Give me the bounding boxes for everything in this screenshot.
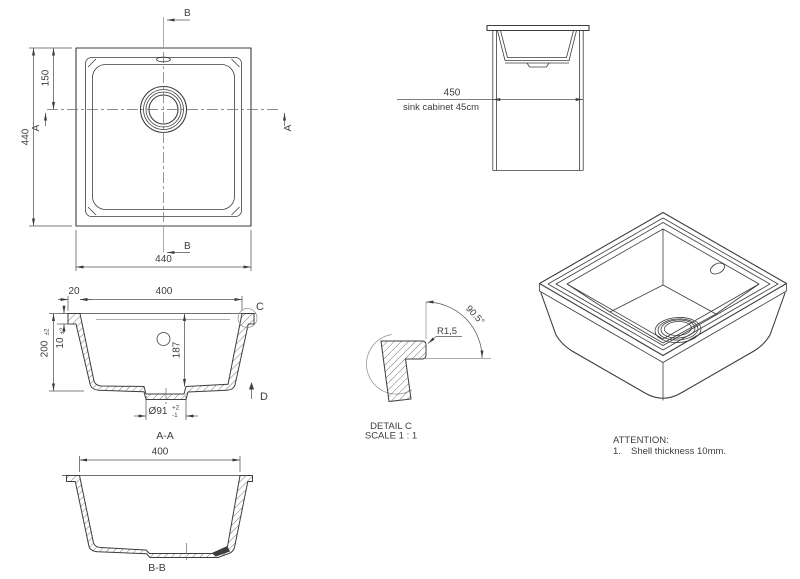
sink-drawing-svg: B B A A 440 150 440 <box>0 0 800 579</box>
dim-text-10: 10 <box>55 337 66 349</box>
direction-d-marker: D <box>249 382 268 403</box>
angle-text: 90.5° <box>463 303 486 327</box>
section-aa-label: A-A <box>156 430 174 442</box>
notes-title: ATTENTION: <box>613 435 669 446</box>
dim-tol-10: ±2 <box>59 327 66 334</box>
section-bb-label: B-B <box>148 562 166 574</box>
radius-text: R1,5 <box>437 326 457 337</box>
section-aa-view: 20 400 200 ±2 10 ±2 187 <box>40 286 269 442</box>
isometric-view <box>540 213 787 401</box>
dimension-400-aa: 400 <box>80 286 242 311</box>
notes-block: ATTENTION: 1. Shell thickness 10mm. <box>613 435 726 457</box>
dim-drain-tol-dn: -1 <box>172 412 178 419</box>
dimension-10: 10 ±2 <box>55 305 73 349</box>
drain-stub <box>527 63 549 67</box>
sink-basin-profile <box>498 31 577 68</box>
notes-item-text: Shell thickness 10mm. <box>631 446 726 457</box>
cabinet-caption: sink cabinet 45cm <box>403 102 479 113</box>
dimension-187: 187 <box>172 314 185 387</box>
rim-corner-section <box>381 341 426 402</box>
section-b-markers: B B <box>164 8 192 253</box>
technical-drawing-sheet: B B A A 440 150 440 <box>0 0 800 579</box>
dim-drain-tol-up: +2 <box>172 405 180 412</box>
dimension-150: 150 <box>41 48 54 110</box>
centerlines <box>47 52 281 222</box>
section-label-a-left: A <box>31 124 42 131</box>
dim-text-400-bb: 400 <box>152 447 169 458</box>
notes-item-number: 1. <box>613 446 621 457</box>
cabinet-view: 450 sink cabinet 45cm <box>397 26 589 171</box>
dim-text-20: 20 <box>68 286 80 297</box>
section-label-a-right: A <box>283 124 294 131</box>
dim-text-150: 150 <box>41 69 52 86</box>
dimension-400-bb: 400 <box>80 447 241 473</box>
radius-dimension: R1,5 <box>428 326 462 344</box>
dim-tol-200: ±2 <box>44 328 51 335</box>
cabinet-carcass <box>493 31 583 171</box>
dim-text-440-bottom: 440 <box>155 254 172 265</box>
top-view: B B A A 440 150 440 <box>21 8 295 271</box>
shell-cross-section <box>68 314 254 400</box>
dim-text-450: 450 <box>444 88 461 99</box>
overflow-hole-iso <box>709 261 727 276</box>
shell-cross-section-bb <box>67 476 253 558</box>
dimension-450: 450 sink cabinet 45cm <box>397 88 583 114</box>
dim-text-drain: Ø91 <box>149 406 168 417</box>
section-label-b-top: B <box>184 8 191 19</box>
dim-text-187: 187 <box>172 341 183 358</box>
countertop <box>487 26 589 31</box>
direction-d-letter: D <box>260 391 268 403</box>
detail-c-letter: C <box>256 301 264 313</box>
section-bb-view: 400 B-B <box>62 447 253 575</box>
basin-interior <box>567 229 759 343</box>
dim-text-400-aa: 400 <box>156 286 173 297</box>
section-label-b-bottom: B <box>184 241 191 252</box>
dim-text-200: 200 <box>40 340 51 357</box>
angle-dimension: 90.5° <box>424 302 491 359</box>
detail-c-view: 90.5° R1,5 DETAIL C SCALE 1 : 1 <box>365 302 491 442</box>
dim-text-440-left: 440 <box>21 128 32 145</box>
detail-c-scale: SCALE 1 : 1 <box>365 431 417 442</box>
dimension-20: 20 <box>58 286 92 311</box>
overflow-hole-section <box>157 333 170 346</box>
section-a-markers: A A <box>31 113 294 131</box>
